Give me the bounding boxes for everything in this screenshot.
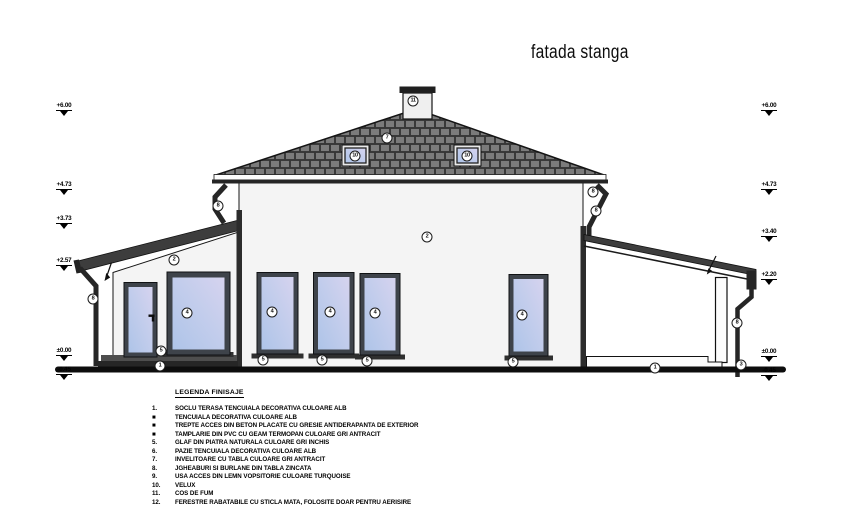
legend-title: LEGENDA FINISAJE	[175, 389, 244, 398]
level-symbol-icon	[765, 376, 773, 381]
elevation-value: +4.73	[761, 182, 778, 190]
legend-item-number: 1.	[152, 405, 175, 414]
callout-label: 10	[350, 151, 361, 162]
legend-item-number: 12.	[152, 499, 175, 507]
elevation-marker-left: ±0.00	[51, 340, 77, 361]
level-symbol-icon	[60, 111, 68, 116]
legend-item-text: GLAF DIN PIATRA NATURALA CULOARE GRI INC…	[175, 439, 329, 448]
callout-label: 8	[732, 318, 743, 329]
callout-label: 10	[462, 151, 473, 162]
legend-item: 10. VELUX	[152, 482, 482, 491]
elevation-marker-right: ±0.00	[756, 341, 782, 362]
callout-label: 4	[267, 307, 278, 318]
legend-item: 7. INVELITOARE CU TABLA CULOARE GRI ANTR…	[152, 456, 482, 465]
elevation-marker-right: +2.20	[756, 264, 782, 285]
legend-item-text: TAMPLARIE DIN PVC CU GEAM TERMOPAN CULOA…	[175, 431, 380, 440]
callout-label: 4	[370, 308, 381, 319]
callout-label: 5	[317, 355, 328, 366]
elevation-marker-left: +4.73	[51, 174, 77, 195]
callout-label: 5	[362, 356, 373, 367]
legend-item-text: TENCUIALA DECORATIVA CULOARE ALB	[175, 414, 297, 423]
elevation-marker-left: +6.00	[51, 95, 77, 116]
elevation-value: ±0.00	[56, 348, 73, 356]
drawing-title: fatada stanga	[531, 42, 629, 64]
legend-item-number: 5.	[152, 439, 175, 448]
callout-label: 1	[650, 363, 661, 374]
callout-label: 8	[213, 201, 224, 212]
elevation-value: -0.45	[761, 368, 776, 376]
legend-item: 11. COS DE FUM	[152, 490, 482, 499]
callout-label: 5	[258, 355, 269, 366]
elevation-marker-right: +6.00	[756, 95, 782, 116]
elevation-value: -0.45	[56, 367, 71, 375]
elevation-value: +6.00	[56, 103, 73, 111]
elevation-marker-right: +3.40	[756, 221, 782, 242]
level-symbol-icon	[765, 111, 773, 116]
elevation-value: ±0.00	[761, 349, 778, 357]
elevation-value: +4.73	[56, 182, 73, 190]
level-symbol-icon	[765, 237, 773, 242]
elevation-value: +2.57	[56, 258, 73, 266]
level-symbol-icon	[60, 190, 68, 195]
legend-item-number: ■	[152, 414, 175, 423]
legend-item-text: TREPTE ACCES DIN BETON PLACATE CU GRESIE…	[175, 422, 418, 431]
legend-item: ■ TAMPLARIE DIN PVC CU GEAM TERMOPAN CUL…	[152, 431, 482, 440]
elevation-marker-left: +3.73	[51, 208, 77, 229]
callout-label: 3	[736, 360, 747, 371]
callout-label: 4	[182, 308, 193, 319]
elevation-value: +2.20	[761, 272, 778, 280]
level-symbol-icon	[765, 280, 773, 285]
callout-label: 5	[156, 346, 167, 357]
callout-label: 8	[591, 206, 602, 217]
legend-item-number: 7.	[152, 456, 175, 465]
callout-label: 5	[508, 357, 519, 368]
elevation-value: +3.40	[761, 229, 778, 237]
legend-item-text: FERESTRE RABATABILE CU STICLA MATA, FOLO…	[175, 499, 411, 507]
callout-label: 2	[169, 255, 180, 266]
legend-item-text: JGHEABURI SI BURLANE DIN TABLA ZINCATA	[175, 465, 311, 474]
legend-item-text: SOCLU TERASA TENCUIALA DECORATIVA CULOAR…	[175, 405, 347, 414]
legend-item-text: VELUX	[175, 482, 195, 491]
callout-label: 2	[422, 232, 433, 243]
elevation-marker-right: -0.45	[756, 360, 782, 381]
legend-item-number: 6.	[152, 448, 175, 457]
legend-item-number: 10.	[152, 482, 175, 491]
legend-item: 8. JGHEABURI SI BURLANE DIN TABLA ZINCAT…	[152, 465, 482, 474]
legend-item-text: INVELITOARE CU TABLA CULOARE GRI ANTRACI…	[175, 456, 325, 465]
level-symbol-icon	[60, 224, 68, 229]
callout-label: 4	[517, 310, 528, 321]
legend-item: ■ TENCUIALA DECORATIVA CULOARE ALB	[152, 414, 482, 423]
level-symbol-icon	[765, 190, 773, 195]
legend-item: 12. FERESTRE RABATABILE CU STICLA MATA, …	[152, 499, 482, 507]
callout-label: 11	[408, 96, 419, 107]
callout-label: 8	[88, 294, 99, 305]
legend-item-text: USA ACCES DIN LEMN VOPSITORIE CULOARE TU…	[175, 473, 351, 482]
elevation-value: +6.00	[761, 103, 778, 111]
callout-label: 7	[382, 133, 393, 144]
finishes-legend: LEGENDA FINISAJE 1. SOCLU TERASA TENCUIA…	[152, 381, 482, 507]
callout-label: 4	[325, 307, 336, 318]
elevation-marker-left: +2.57	[51, 250, 77, 271]
level-symbol-icon	[60, 375, 68, 380]
drawing-sheet: fatada stanga +6.00 +4.73 +3.73 +2.57	[0, 0, 846, 507]
legend-item-number: ■	[152, 422, 175, 431]
elevation-marker-right: +4.73	[756, 174, 782, 195]
elevation-marker-left: -0.45	[51, 359, 77, 380]
callout-label: 8	[588, 187, 599, 198]
legend-item-number: 11.	[152, 490, 175, 499]
legend-item-number: ■	[152, 431, 175, 440]
legend-item-text: PAZIE TENCUIALA DECORATIVA CULOARE ALB	[175, 448, 316, 457]
legend-item: ■ TREPTE ACCES DIN BETON PLACATE CU GRES…	[152, 422, 482, 431]
legend-item-number: 8.	[152, 465, 175, 474]
legend-item: 6. PAZIE TENCUIALA DECORATIVA CULOARE AL…	[152, 448, 482, 457]
callout-label: 1	[155, 361, 166, 372]
level-symbol-icon	[60, 266, 68, 271]
elevation-value: +3.73	[56, 216, 73, 224]
legend-item-text: COS DE FUM	[175, 490, 213, 499]
legend-item: 5. GLAF DIN PIATRA NATURALA CULOARE GRI …	[152, 439, 482, 448]
legend-item-number: 9.	[152, 473, 175, 482]
legend-item: 1. SOCLU TERASA TENCUIALA DECORATIVA CUL…	[152, 405, 482, 414]
legend-item: 9. USA ACCES DIN LEMN VOPSITORIE CULOARE…	[152, 473, 482, 482]
